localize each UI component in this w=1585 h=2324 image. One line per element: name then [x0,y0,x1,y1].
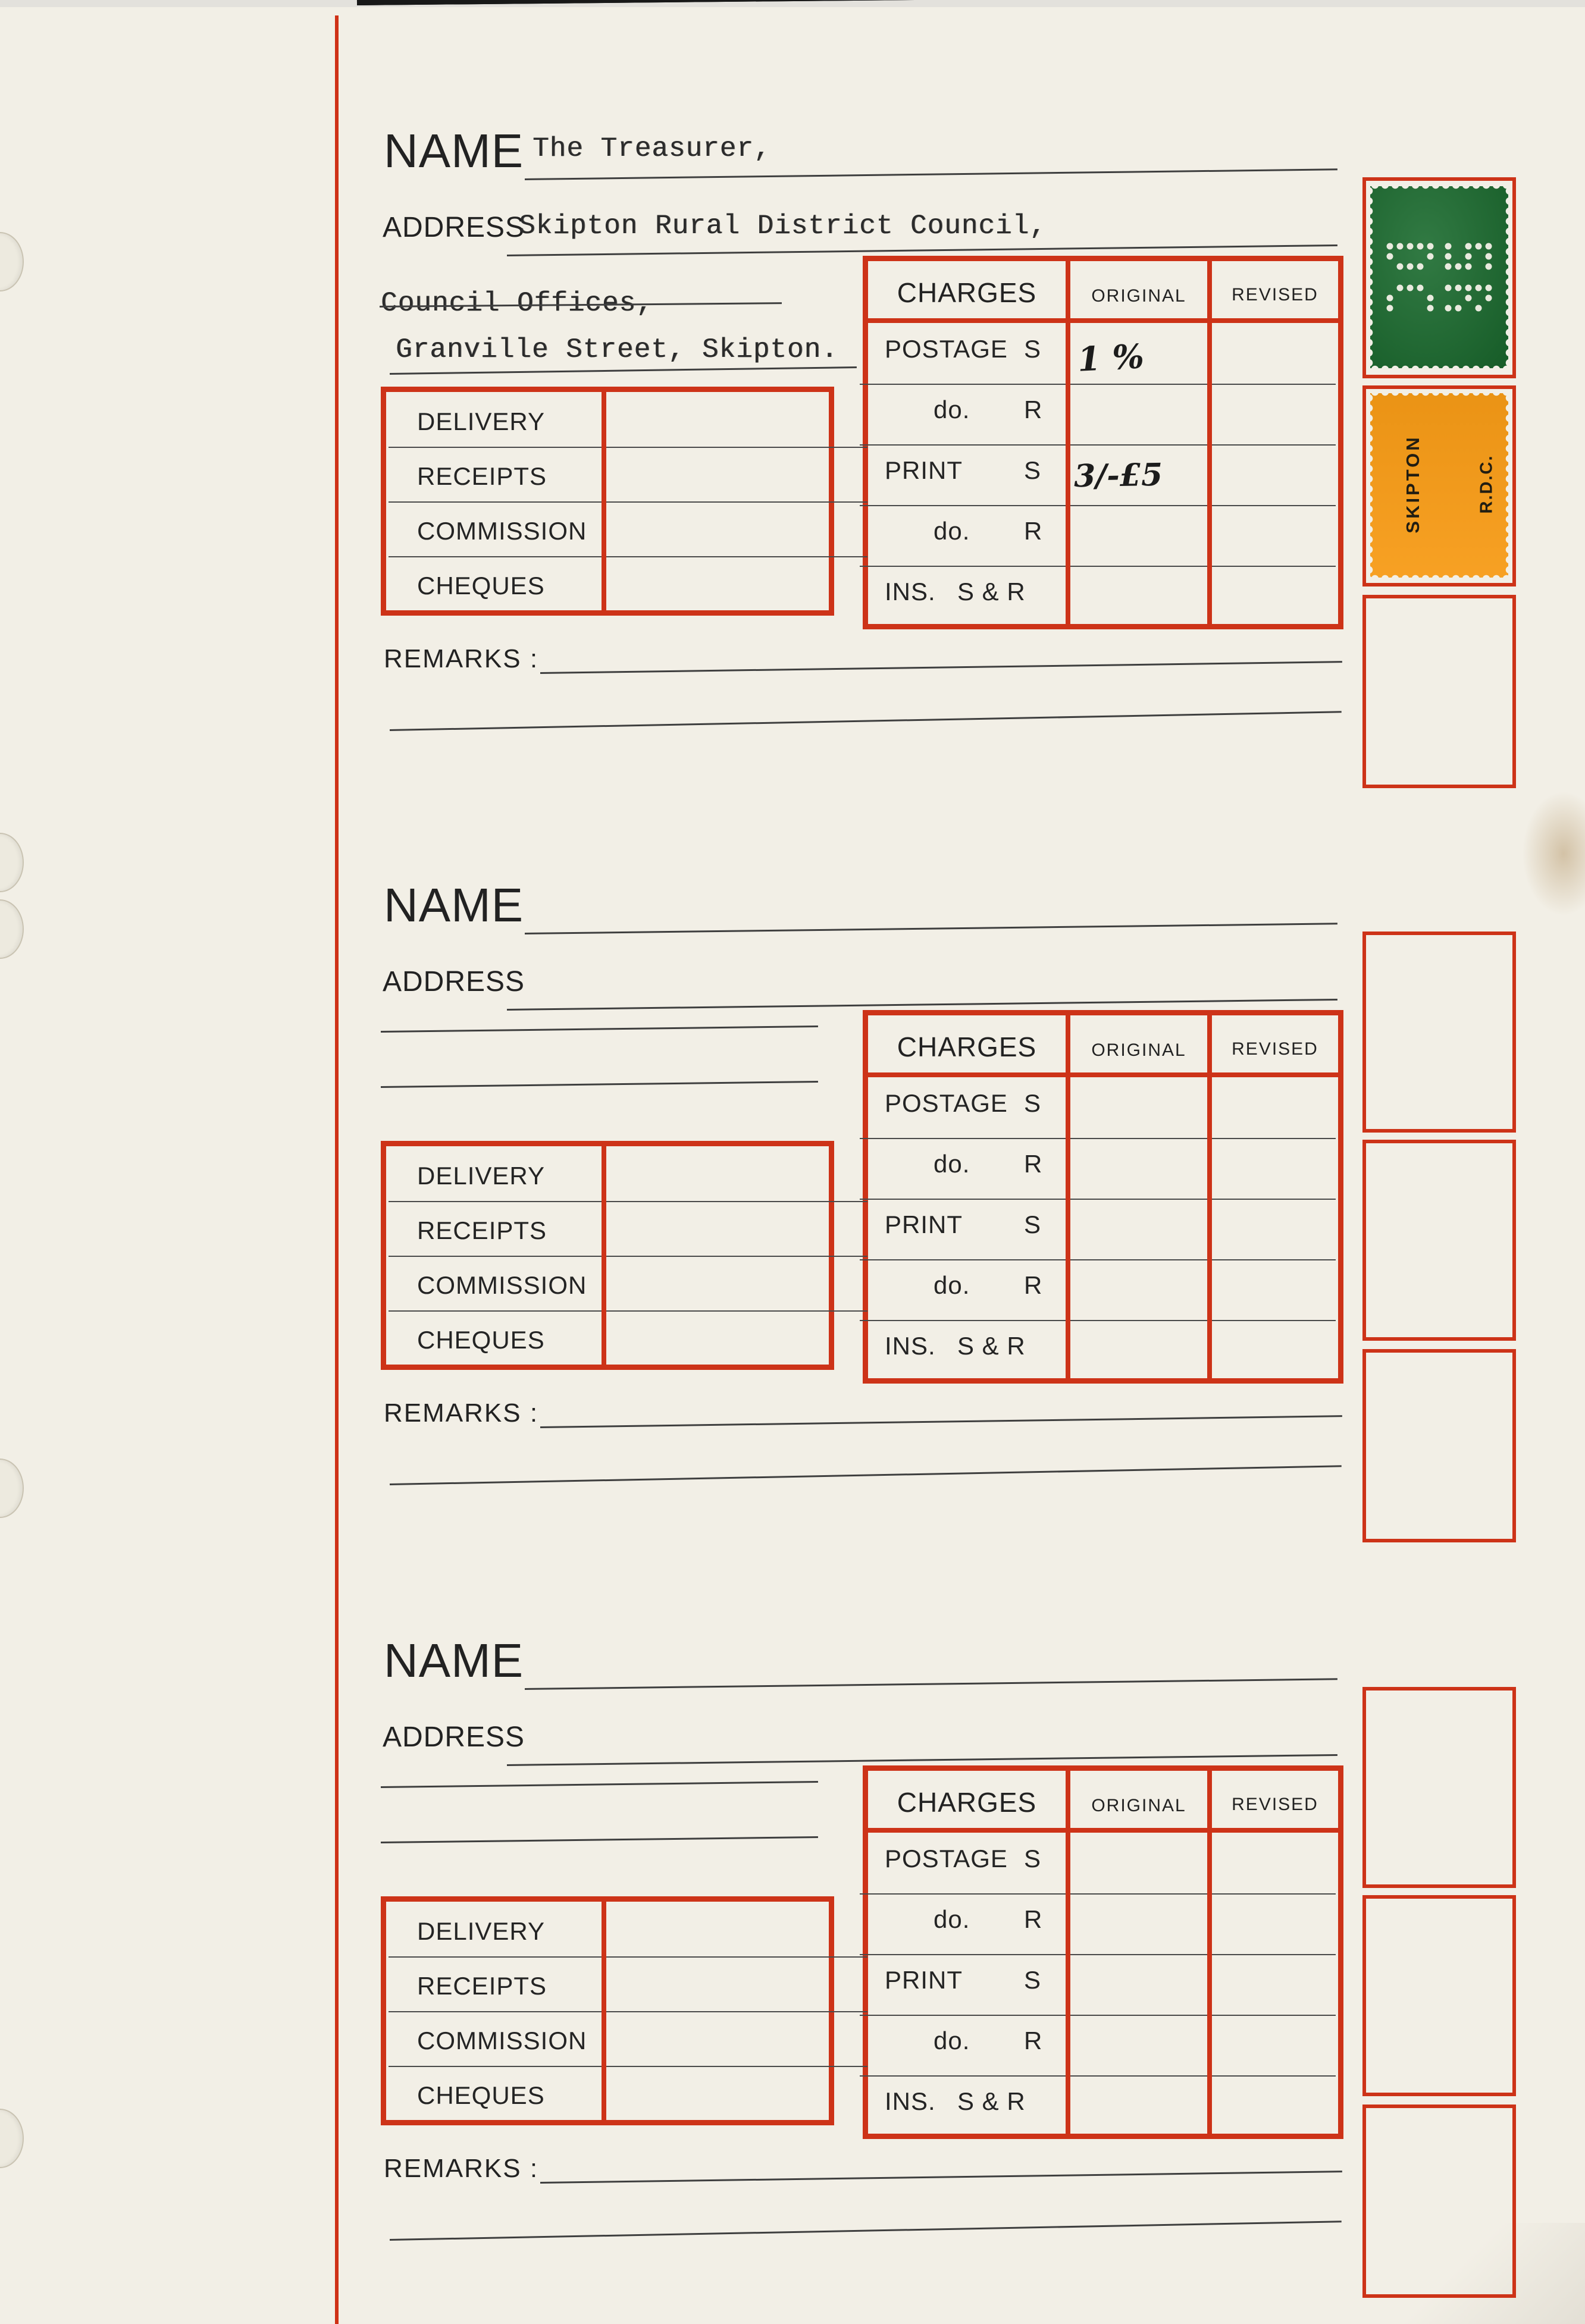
charges-title: CHARGES [868,277,1066,309]
charges-row-label: PRINT [885,1210,963,1239]
charges-row-qualifier: S [1024,1210,1041,1239]
charges-row-separator [860,444,1336,446]
delivery-row-label: DELIVERY [417,1162,545,1190]
remarks-label: REMARKS : [384,2154,538,2184]
address-line-rule [381,1781,818,1788]
charges-row-label: INS. [885,578,936,606]
charges-column-divider [1066,261,1070,624]
remarks-label: REMARKS : [384,1398,538,1428]
remarks-rule [390,2220,1342,2241]
charges-row-qualifier: S [1024,1845,1041,1873]
stamp-box [1362,1140,1516,1341]
charges-row-separator [860,1320,1336,1321]
charges-row-label: POSTAGE [885,1845,1008,1873]
charges-row-label: INS. [885,2087,936,2116]
charges-row-separator [860,1199,1336,1200]
delivery-row-label: DELIVERY [417,407,545,436]
name-value: The Treasurer, [532,133,770,164]
charges-table: CHARGES ORIGINAL REVISED POSTAGE S do. R… [863,1010,1343,1384]
charges-col-revised: REVISED [1212,1039,1338,1059]
charges-row-label: do. [934,396,970,424]
charges-col-revised: REVISED [1212,1795,1338,1815]
charges-row-separator [860,2015,1336,2016]
address-line3-value: Granville Street, Skipton. [396,334,838,365]
ledger-entry-section: NAME The Treasurer, ADDRESS Skipton Rura… [0,0,1585,798]
charges-col-original: ORIGINAL [1070,1040,1207,1061]
stamp-box [1362,177,1516,378]
ledger-entry-section: NAME ADDRESS CHARGES ORIGINAL REVISED PO… [0,754,1585,1549]
charges-row-qualifier: R [1024,2027,1042,2055]
perforation-edge [1369,393,1375,578]
name-rule [525,923,1337,934]
delivery-row-label: CHEQUES [417,572,545,600]
charges-row-label: do. [934,1905,970,1934]
ledger-entry-section: NAME ADDRESS CHARGES ORIGINAL REVISED PO… [0,1510,1585,2324]
charges-row-qualifier: S & R [957,578,1026,606]
delivery-column-divider [602,392,606,610]
name-label: NAME [384,1633,524,1688]
charges-row-separator [860,2075,1336,2077]
charges-header-divider [868,318,1338,323]
remarks-rule [540,2171,1342,2184]
remarks-rule [390,711,1342,731]
charges-row-separator [860,566,1336,567]
charges-column-divider [1066,1771,1070,2134]
charges-row-qualifier: R [1024,517,1042,545]
charges-value-handwritten: 3/-£5 [1073,457,1163,495]
charges-row-label: do. [934,1271,970,1300]
address-line-rule [381,1025,818,1033]
delivery-row-label: CHEQUES [417,2081,545,2110]
perforation-edge [1369,186,1375,368]
delivery-row-label: CHEQUES [417,1326,545,1354]
delivery-row-label: RECEIPTS [417,1216,547,1245]
stamp-box [1362,1895,1516,2096]
remarks-label: REMARKS : [384,644,538,674]
charges-row-separator [860,505,1336,506]
delivery-row-label: RECEIPTS [417,1972,547,2000]
charges-value-handwritten: 1 % [1076,337,1145,380]
charges-row-qualifier: S [1024,1089,1041,1118]
perforation-edge [1370,573,1508,579]
name-rule [525,1678,1337,1690]
charges-row-separator [860,1954,1336,1955]
charges-row-qualifier: S [1024,1966,1041,1994]
charges-header-divider [868,1072,1338,1077]
delivery-row-label: COMMISSION [417,517,587,545]
stamp-text-rdc: R.D.C. [1477,455,1497,514]
delivery-row-separator [389,2066,867,2067]
address-rule [507,244,1337,256]
charges-column-divider [1066,1015,1070,1378]
charges-row-qualifier: R [1024,1905,1042,1934]
address-value: Skipton Rural District Council, [519,211,1047,242]
charges-table: CHARGES ORIGINAL REVISED POSTAGE S do. R… [863,256,1343,629]
charges-row-separator [860,1259,1336,1260]
remarks-rule [540,661,1342,674]
delivery-table: DELIVERY RECEIPTS COMMISSION CHEQUES [381,1141,834,1370]
address-label: ADDRESS [383,1721,525,1754]
charges-column-divider [1207,1771,1212,2134]
remarks-rule [390,1465,1342,1485]
perforation-edge [1370,185,1508,191]
charges-row-separator [860,1893,1336,1895]
orange-stamp: SKIPTON R.D.C. [1370,393,1508,578]
name-label: NAME [384,124,524,178]
charges-row-qualifier: S [1024,456,1041,485]
charges-row-separator [860,1138,1336,1139]
charges-table: CHARGES ORIGINAL REVISED POSTAGE S do. R… [863,1765,1343,2139]
charges-row-label: INS. [885,1332,936,1360]
charges-column-divider [1207,261,1212,624]
charges-row-label: do. [934,2027,970,2055]
charges-row-qualifier: R [1024,1150,1042,1178]
charges-row-qualifier: R [1024,396,1042,424]
delivery-row-separator [389,1201,867,1202]
charges-col-original: ORIGINAL [1070,286,1207,306]
charges-row-separator [860,384,1336,385]
perforation-edge [1503,393,1509,578]
delivery-row-label: COMMISSION [417,1271,587,1300]
charges-title: CHARGES [868,1786,1066,1818]
charges-col-original: ORIGINAL [1070,1796,1207,1816]
stamp-box [1362,2105,1516,2298]
charges-row-label: PRINT [885,1966,963,1994]
address-rule [507,999,1337,1011]
perforation-edge [1503,186,1509,368]
green-stamp [1370,186,1508,368]
remarks-rule [540,1415,1342,1428]
delivery-column-divider [602,1902,606,2120]
perforation-edge [1370,392,1508,398]
delivery-row-label: DELIVERY [417,1917,545,1946]
charges-row-label: do. [934,1150,970,1178]
charges-row-qualifier: S & R [957,1332,1026,1360]
name-label: NAME [384,878,524,933]
delivery-row-label: RECEIPTS [417,462,547,491]
stamp-box [1362,1687,1516,1888]
perforation-edge [1370,363,1508,369]
name-rule [525,168,1337,180]
charges-header-divider [868,1828,1338,1833]
address-line3-rule [390,366,857,375]
charges-row-label: do. [934,517,970,545]
stamp-box [1362,932,1516,1133]
ledger-page: NAME The Treasurer, ADDRESS Skipton Rura… [0,0,1585,2324]
delivery-row-separator [389,447,867,448]
stamp-text-skipton: SKIPTON [1402,435,1424,533]
address-line-rule [381,1081,818,1088]
delivery-row-separator [389,1256,867,1257]
charges-row-label: PRINT [885,456,963,485]
charges-row-label: POSTAGE [885,335,1008,363]
charges-row-label: POSTAGE [885,1089,1008,1118]
charges-row-qualifier: S & R [957,2087,1026,2116]
delivery-row-separator [389,1310,867,1312]
delivery-row-separator [389,1956,867,1958]
charges-title: CHARGES [868,1031,1066,1063]
address-line-rule [381,1836,818,1843]
delivery-row-label: COMMISSION [417,2027,587,2055]
charges-row-qualifier: R [1024,1271,1042,1300]
charges-row-qualifier: S [1024,335,1041,363]
address-label: ADDRESS [383,211,525,244]
charges-col-revised: REVISED [1212,285,1338,305]
charges-column-divider [1207,1015,1212,1378]
delivery-table: DELIVERY RECEIPTS COMMISSION CHEQUES [381,387,834,616]
perfin-letters [1386,243,1492,312]
delivery-row-separator [389,2011,867,2012]
stamp-box: SKIPTON R.D.C. [1362,385,1516,587]
delivery-row-separator [389,501,867,503]
delivery-row-separator [389,556,867,557]
address-label: ADDRESS [383,965,525,998]
delivery-column-divider [602,1146,606,1365]
delivery-table: DELIVERY RECEIPTS COMMISSION CHEQUES [381,1896,834,2125]
address-rule [507,1754,1337,1766]
